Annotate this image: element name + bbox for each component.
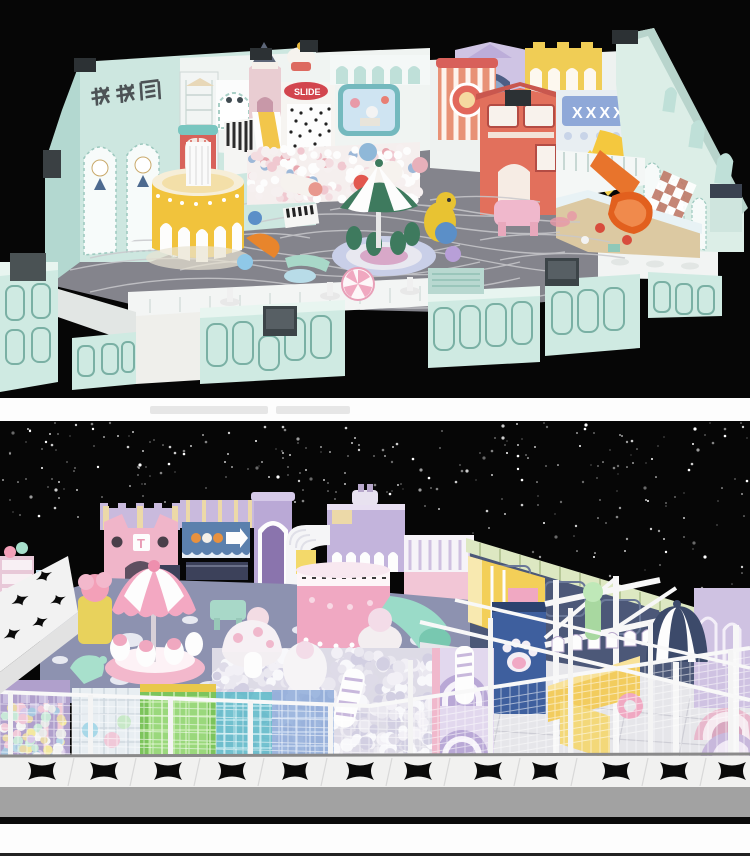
svg-text:SLIDE: SLIDE (294, 87, 321, 97)
svg-text:XXXX: XXXX (572, 105, 627, 122)
svg-text:T: T (137, 536, 145, 551)
